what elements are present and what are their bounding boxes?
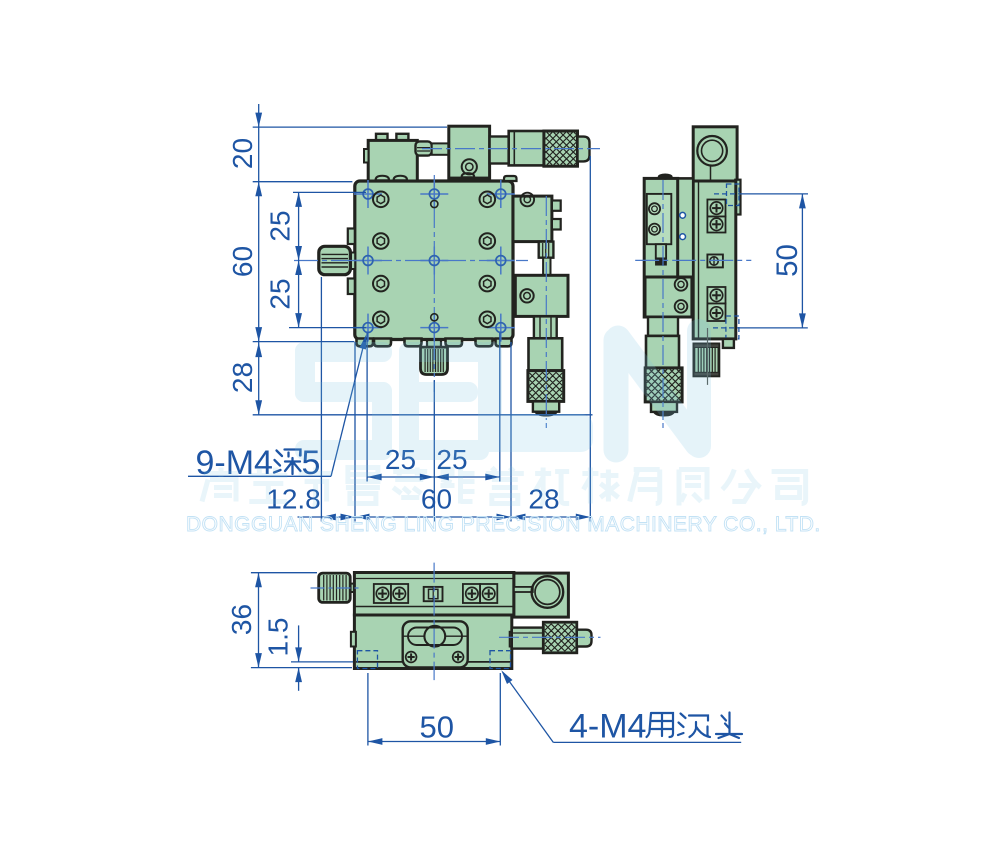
svg-text:25: 25 <box>265 210 296 241</box>
svg-text:25: 25 <box>265 278 296 309</box>
svg-text:20: 20 <box>227 138 258 169</box>
svg-text:1.5: 1.5 <box>263 618 294 657</box>
svg-text:28: 28 <box>227 362 258 393</box>
svg-text:50: 50 <box>420 710 454 745</box>
svg-text:60: 60 <box>421 484 452 515</box>
svg-text:50: 50 <box>771 244 804 277</box>
svg-text:36: 36 <box>226 604 257 635</box>
svg-text:60: 60 <box>227 246 258 277</box>
svg-text:DONGGUAN SHENG LING PRECISION: DONGGUAN SHENG LING PRECISION MACHINERY … <box>186 513 821 536</box>
svg-text:4-M4: 4-M4 <box>569 708 646 746</box>
